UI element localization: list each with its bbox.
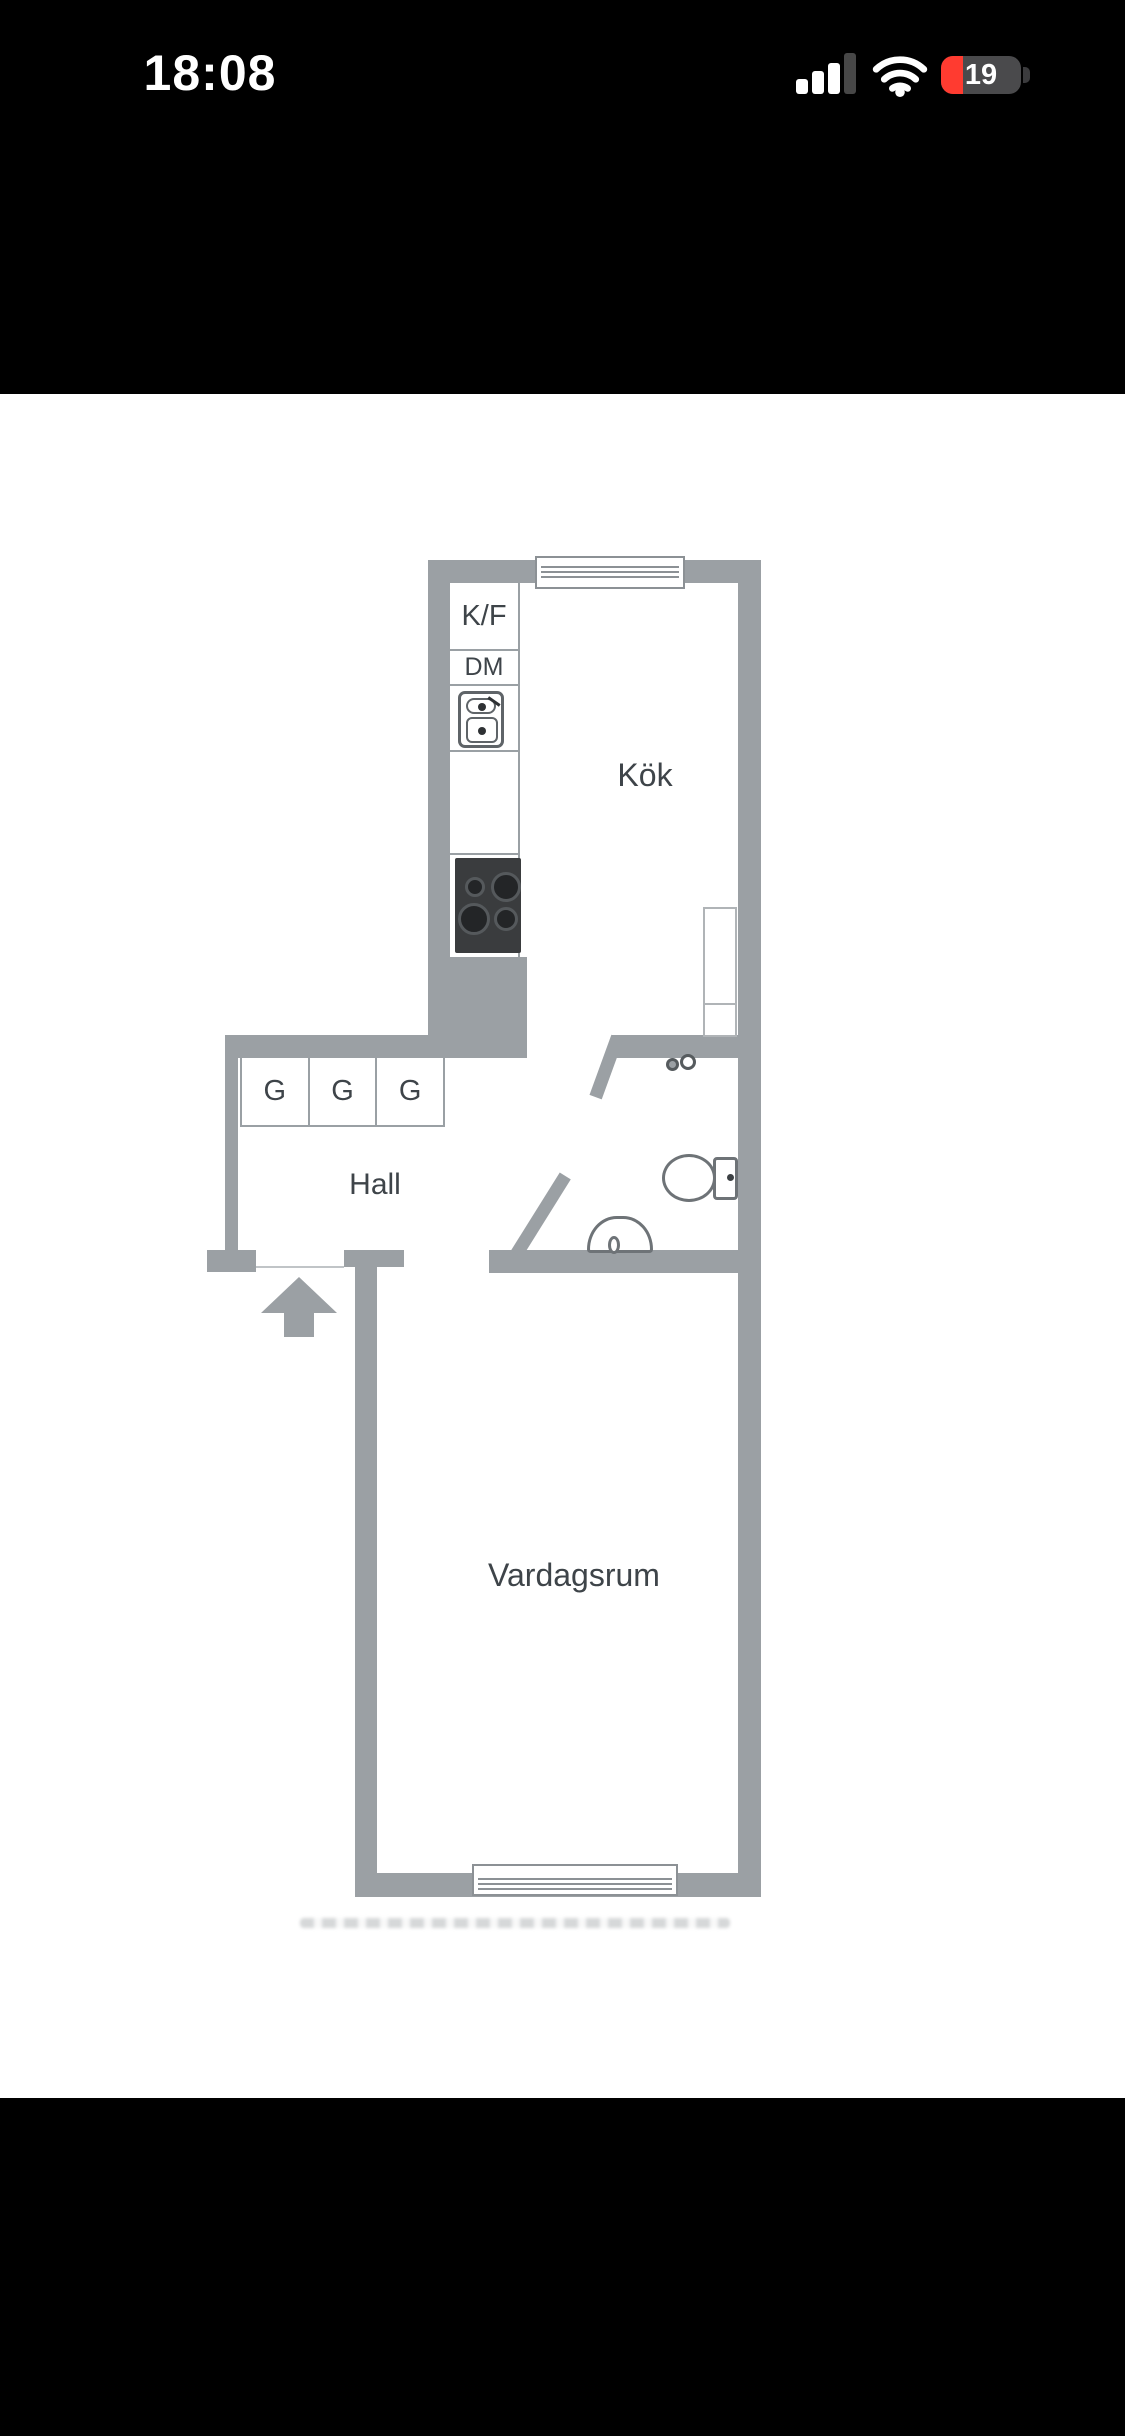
- wall-kitchen-left: [428, 583, 450, 957]
- sink-drain-dot: [478, 703, 486, 711]
- window-line: [478, 1888, 672, 1890]
- wall-right-outer: [738, 560, 761, 1897]
- toilet-tank: [713, 1157, 738, 1200]
- window-line: [478, 1878, 672, 1880]
- door-leaf-kitchen: [590, 1035, 624, 1100]
- signal-bar-4-empty: [844, 53, 856, 94]
- wall-livingroom-left: [355, 1267, 377, 1897]
- signal-bar-3: [828, 63, 840, 94]
- room-label-hall: Hall: [300, 1168, 450, 1202]
- burner-icon: [491, 872, 521, 902]
- window-line: [541, 576, 679, 578]
- iphone-screenshot: 18:08 19: [0, 0, 1125, 2436]
- sink-basin-large: [466, 717, 498, 743]
- wardrobe-label: G: [310, 1058, 378, 1127]
- battery-percent: 19: [941, 56, 1021, 94]
- window-line: [541, 571, 679, 573]
- stove-cell: [450, 855, 518, 957]
- bathroom-valve-icon: [666, 1058, 679, 1071]
- window-line: [478, 1883, 672, 1885]
- washbasin-drain: [608, 1236, 620, 1254]
- burner-icon: [494, 907, 518, 931]
- burner-icon: [465, 877, 485, 897]
- kitchen-cupboard: [703, 907, 737, 1037]
- burner-icon: [458, 903, 490, 935]
- kitchen-worktop-cell: [450, 752, 518, 855]
- signal-bar-1: [796, 79, 808, 94]
- wall-hall-top: [225, 1035, 428, 1058]
- wardrobe-label: G: [240, 1058, 310, 1127]
- room-label-livingroom: Vardagsrum: [449, 1557, 699, 1594]
- cellular-signal-icon: [796, 52, 858, 94]
- wifi-icon: [871, 55, 929, 97]
- entrance-arrow-stem: [284, 1313, 314, 1337]
- wall-livingroom-left-cap: [344, 1250, 404, 1267]
- kitchen-sink-cell: [450, 686, 518, 752]
- status-time: 18:08: [120, 48, 300, 98]
- window-kitchen: [535, 556, 685, 589]
- bottom-letterbox-band: [0, 2098, 1125, 2436]
- signal-bar-2: [812, 71, 824, 94]
- top-letterbox-band: 18:08 19: [0, 0, 1125, 394]
- room-label-kitchen: Kök: [560, 757, 730, 794]
- kitchen-sink-icon: [458, 691, 504, 748]
- wall-hall-left: [225, 1058, 238, 1252]
- floor-plan-photo: K/F DM: [0, 394, 1125, 2098]
- battery-nub: [1023, 67, 1030, 83]
- entrance-threshold: [256, 1266, 344, 1268]
- entrance-arrow-icon: [261, 1277, 337, 1313]
- kitchen-counter: K/F DM: [450, 583, 520, 957]
- dishwasher-label: DM: [450, 651, 518, 686]
- wardrobe-label: G: [377, 1058, 445, 1127]
- hall-wardrobes: G G G: [240, 1058, 445, 1127]
- bathroom-valve-icon: [680, 1054, 696, 1070]
- battery-icon: 19: [941, 56, 1021, 94]
- illegible-caption-artifact: [300, 1918, 730, 1928]
- cupboard-divider: [705, 1003, 735, 1005]
- fridge-freezer-label: K/F: [450, 583, 518, 651]
- washbasin-icon: [587, 1216, 653, 1253]
- sink-drain-dot: [478, 727, 486, 735]
- window-line: [541, 566, 679, 568]
- wall-bathroom-top: [612, 1035, 738, 1058]
- toilet-flush-button: [727, 1174, 734, 1181]
- door-leaf-bathroom: [511, 1173, 571, 1258]
- wall-kitchen-hall-divider: [428, 957, 527, 1058]
- toilet-icon: [662, 1154, 716, 1202]
- wall-entrance-jamb: [207, 1250, 256, 1272]
- window-livingroom: [472, 1864, 678, 1896]
- stove-icon: [455, 858, 521, 953]
